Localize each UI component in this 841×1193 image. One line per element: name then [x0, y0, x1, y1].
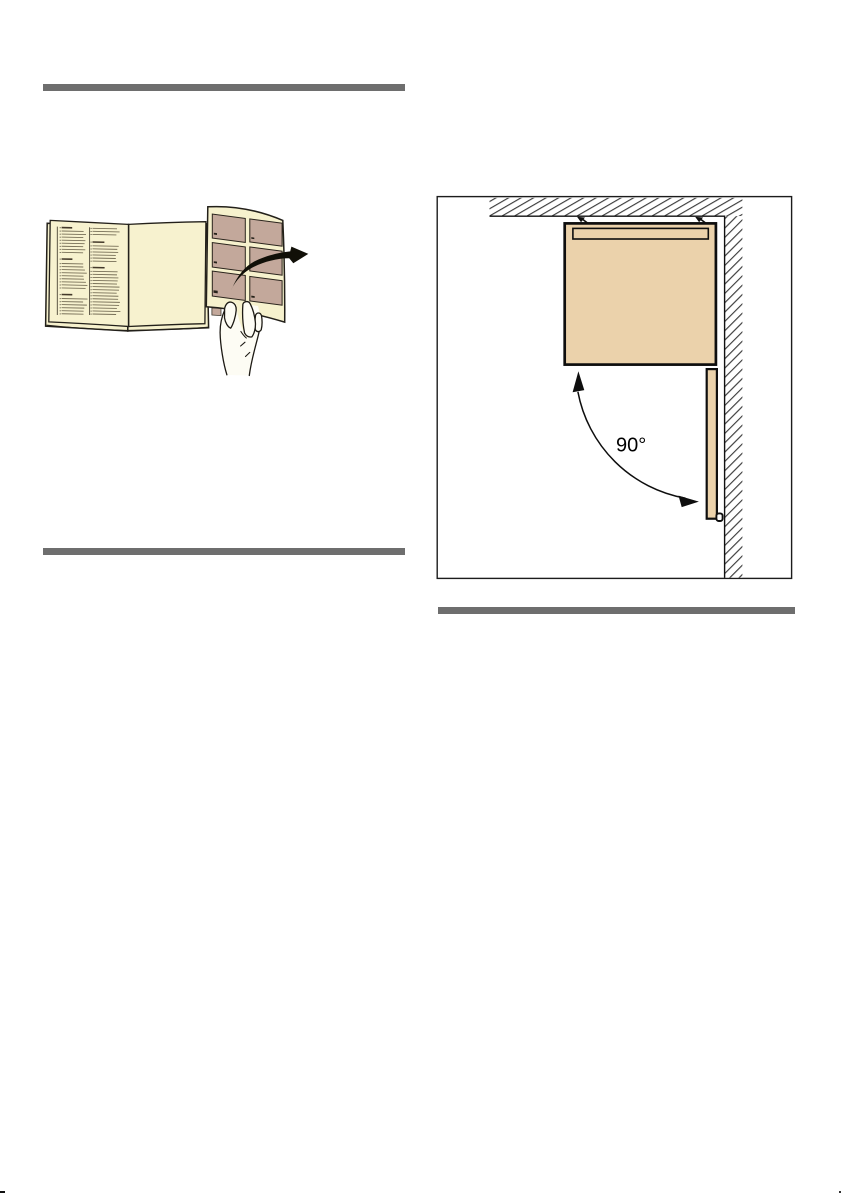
svg-text:90°: 90° — [616, 435, 646, 457]
